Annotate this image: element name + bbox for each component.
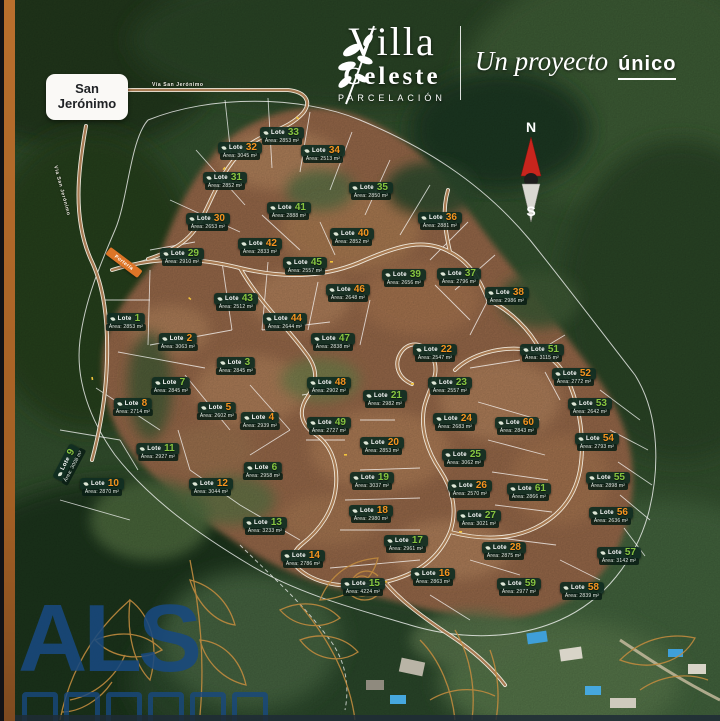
lot-label: Lote bbox=[337, 287, 351, 293]
lot-label: Lote bbox=[422, 571, 436, 577]
lot-label: Lote bbox=[360, 508, 374, 514]
lot-marker: Lote 18 Área: 2980 m² bbox=[349, 505, 393, 523]
lot-number: 19 bbox=[378, 473, 389, 483]
lot-label: Lote bbox=[459, 483, 473, 489]
lot-number: 44 bbox=[291, 314, 302, 324]
lot-number: 15 bbox=[369, 579, 380, 589]
lot-label: Lote bbox=[163, 380, 177, 386]
leaf-icon bbox=[155, 380, 160, 385]
leaf-icon bbox=[510, 486, 515, 491]
lot-label: Lote bbox=[91, 481, 105, 487]
lot-area: Área: 2714 m² bbox=[113, 409, 153, 416]
lot-number: 56 bbox=[617, 508, 628, 518]
leaf-icon bbox=[286, 260, 291, 265]
lot-marker: Lote 58 Área: 2839 m² bbox=[560, 582, 604, 600]
lot-area: Área: 2796 m² bbox=[439, 279, 479, 286]
lot-area: Área: 2852 m² bbox=[205, 183, 245, 190]
lot-label: Lote bbox=[318, 420, 332, 426]
lot-label: Lote bbox=[318, 380, 332, 386]
lot-number: 26 bbox=[476, 481, 487, 491]
lot-number: 43 bbox=[242, 294, 253, 304]
leaf-icon bbox=[344, 581, 349, 586]
lot-area: Área: 2642 m² bbox=[570, 409, 610, 416]
lot-label: Lote bbox=[439, 380, 453, 386]
leaf-icon bbox=[314, 336, 319, 341]
lot-marker: Lote 13 Área: 3233 m² bbox=[243, 517, 287, 535]
lot-marker: Lote 55 Área: 2898 m² bbox=[586, 472, 630, 490]
lot-label: Lote bbox=[171, 251, 185, 257]
lot-label: Lote bbox=[249, 241, 263, 247]
leaf-icon bbox=[247, 465, 252, 470]
lot-marker: Lote 8 Área: 2714 m² bbox=[113, 398, 153, 416]
lot-marker: Lote 4 Área: 2939 m² bbox=[240, 412, 280, 430]
leaf-icon bbox=[162, 336, 167, 341]
lot-label: Lote bbox=[586, 436, 600, 442]
lot-marker: Lote 21 Área: 2982 m² bbox=[363, 390, 407, 408]
lot-marker: Lote 24 Área: 2683 m² bbox=[433, 413, 477, 431]
leaf-icon bbox=[498, 420, 503, 425]
lot-marker: Lote 16 Área: 2863 m² bbox=[411, 568, 455, 586]
lot-area: Área: 2653 m² bbox=[188, 224, 228, 231]
lot-label: Lote bbox=[571, 585, 585, 591]
lot-label: Lote bbox=[274, 316, 288, 322]
lot-marker: Lote 28 Área: 2875 m² bbox=[482, 542, 526, 560]
lot-number: 36 bbox=[446, 213, 457, 223]
leaf-icon bbox=[310, 420, 315, 425]
lot-area: Área: 2863 m² bbox=[413, 579, 453, 586]
leaf-icon bbox=[416, 347, 421, 352]
lot-label: Lote bbox=[518, 486, 532, 492]
lot-number: 34 bbox=[329, 146, 340, 156]
lot-area: Área: 2838 m² bbox=[313, 344, 353, 351]
lot-area: Área: 3045 m² bbox=[220, 153, 260, 160]
lot-marker: Lote 6 Área: 2958 m² bbox=[243, 462, 283, 480]
leaf-icon bbox=[83, 481, 88, 486]
lot-number: 49 bbox=[335, 418, 346, 428]
lot-number: 48 bbox=[335, 378, 346, 388]
lot-label: Lote bbox=[352, 581, 366, 587]
lot-number: 31 bbox=[231, 173, 242, 183]
lot-number: 3 bbox=[245, 358, 251, 368]
leaf-icon bbox=[414, 571, 419, 576]
leaf-icon bbox=[440, 271, 445, 276]
lot-area: Área: 2683 m² bbox=[435, 424, 475, 431]
lot-label: Lote bbox=[395, 538, 409, 544]
lot-number: 28 bbox=[510, 543, 521, 553]
lot-label: Lote bbox=[341, 231, 355, 237]
lot-area: Área: 3062 m² bbox=[444, 460, 484, 467]
leaf-icon bbox=[366, 393, 371, 398]
lot-marker: Lote 30 Área: 2653 m² bbox=[186, 213, 230, 231]
lot-label: Lote bbox=[393, 272, 407, 278]
lot-area: Área: 2833 m² bbox=[240, 249, 280, 256]
lot-marker: Lote 41 Área: 2888 m² bbox=[267, 202, 311, 220]
lot-number: 47 bbox=[339, 334, 350, 344]
lot-marker: Lote 42 Área: 2833 m² bbox=[238, 238, 282, 256]
leaf-icon bbox=[421, 215, 426, 220]
leaf-icon bbox=[217, 296, 222, 301]
lot-marker: Lote 15 Área: 4224 m² bbox=[341, 578, 385, 596]
lot-number: 29 bbox=[188, 249, 199, 259]
lot-label: Lote bbox=[209, 405, 223, 411]
lot-marker: Lote 34 Área: 2513 m² bbox=[301, 145, 345, 163]
lot-marker: Lote 20 Área: 2853 m² bbox=[360, 437, 404, 455]
lot-number: 32 bbox=[246, 143, 257, 153]
lot-label: Lote bbox=[600, 510, 614, 516]
tagline-unico: único bbox=[618, 53, 676, 80]
lot-marker: Lote 37 Área: 2796 m² bbox=[437, 268, 481, 286]
lot-marker: Lote 11 Área: 2927 m² bbox=[136, 443, 179, 461]
leaf-icon bbox=[363, 440, 368, 445]
leaf-icon bbox=[140, 446, 145, 451]
lot-area: Área: 3037 m² bbox=[352, 483, 392, 490]
lot-number: 42 bbox=[266, 239, 277, 249]
leaf-icon bbox=[284, 553, 289, 558]
lot-label: Lote bbox=[468, 513, 482, 519]
lot-number: 39 bbox=[410, 270, 421, 280]
lot-label: Lote bbox=[214, 175, 228, 181]
lot-number: 53 bbox=[596, 399, 607, 409]
lot-number: 17 bbox=[412, 536, 423, 546]
lot-area: Área: 2898 m² bbox=[588, 483, 628, 490]
lot-label: Lote bbox=[508, 581, 522, 587]
lot-area: Área: 2839 m² bbox=[562, 593, 602, 600]
lot-area: Área: 2977 m² bbox=[499, 589, 539, 596]
lot-number: 24 bbox=[461, 414, 472, 424]
leaf-icon bbox=[220, 360, 225, 365]
lot-label: Lote bbox=[292, 553, 306, 559]
lot-label: Lote bbox=[493, 545, 507, 551]
lot-number: 13 bbox=[271, 518, 282, 528]
lot-marker: Lote 14 Área: 2786 m² bbox=[281, 550, 325, 568]
lot-marker: Lote 59 Área: 2977 m² bbox=[497, 578, 541, 596]
watermark-text: ALS bbox=[18, 596, 198, 682]
lot-label: Lote bbox=[374, 393, 388, 399]
lot-marker: Lote 40 Área: 2852 m² bbox=[330, 228, 374, 246]
lot-area: Área: 2547 m² bbox=[415, 355, 455, 362]
lot-number: 60 bbox=[523, 418, 534, 428]
lot-marker: Lote 7 Área: 2845 m² bbox=[151, 377, 191, 395]
leaf-icon bbox=[58, 472, 62, 476]
branch-icon bbox=[338, 22, 380, 108]
lot-number: 58 bbox=[588, 583, 599, 593]
lot-area: Área: 2727 m² bbox=[309, 428, 349, 435]
lot-area: Área: 2927 m² bbox=[138, 454, 178, 461]
lot-area: Área: 2866 m² bbox=[509, 494, 549, 501]
lot-number: 12 bbox=[217, 479, 228, 489]
lot-label: Lote bbox=[531, 347, 545, 353]
lot-marker: Lote 61 Área: 2866 m² bbox=[507, 483, 551, 501]
lot-label: Lote bbox=[579, 401, 593, 407]
leaf-icon bbox=[244, 415, 249, 420]
lot-marker: Lote 36 Área: 2881 m² bbox=[418, 212, 462, 230]
bottom-shadow-strip bbox=[0, 715, 720, 721]
lot-number: 10 bbox=[108, 479, 119, 489]
leaf-icon bbox=[571, 401, 576, 406]
leaf-icon bbox=[266, 316, 271, 321]
lot-area: Área: 2843 m² bbox=[497, 428, 537, 435]
lot-label: Lote bbox=[453, 452, 467, 458]
lot-number: 41 bbox=[295, 203, 306, 213]
lot-label: Lote bbox=[429, 215, 443, 221]
lot-number: 46 bbox=[354, 285, 365, 295]
lot-area: Área: 2875 m² bbox=[484, 553, 524, 560]
lot-label: Lote bbox=[506, 420, 520, 426]
lot-number: 38 bbox=[513, 288, 524, 298]
lot-area: Área: 2786 m² bbox=[283, 561, 323, 568]
leaf-icon bbox=[578, 436, 583, 441]
lot-number: 14 bbox=[309, 551, 320, 561]
lot-number: 5 bbox=[226, 403, 232, 413]
leaf-icon bbox=[589, 475, 594, 480]
lot-area: Área: 2852 m² bbox=[332, 239, 372, 246]
lot-label: Lote bbox=[254, 520, 268, 526]
lot-number: 8 bbox=[142, 399, 148, 409]
leaf-icon bbox=[241, 241, 246, 246]
lot-number: 6 bbox=[272, 463, 278, 473]
leaf-icon bbox=[192, 481, 197, 486]
lot-marker: Lote 5 Área: 2602 m² bbox=[197, 402, 237, 420]
lot-marker: Lote 52 Área: 2772 m² bbox=[552, 368, 596, 386]
lot-label: Lote bbox=[147, 446, 161, 452]
lot-number: 37 bbox=[465, 269, 476, 279]
lot-area: Área: 2845 m² bbox=[216, 368, 256, 375]
lot-area: Área: 2902 m² bbox=[309, 388, 349, 395]
lot-label: Lote bbox=[424, 347, 438, 353]
lot-area: Área: 2961 m² bbox=[386, 546, 426, 553]
lot-marker: Lote 26 Área: 2570 m² bbox=[448, 480, 492, 498]
lot-marker: Lote 43 Área: 2512 m² bbox=[214, 293, 258, 311]
lot-label: Lote bbox=[361, 475, 375, 481]
lot-label: Lote bbox=[229, 145, 243, 151]
lot-marker: Lote 19 Área: 3037 m² bbox=[350, 472, 394, 490]
leaf-icon bbox=[431, 380, 436, 385]
leaf-icon bbox=[600, 550, 605, 555]
lot-label: Lote bbox=[444, 416, 458, 422]
lot-area: Área: 3044 m² bbox=[191, 489, 231, 496]
lot-marker: Lote 48 Área: 2902 m² bbox=[307, 377, 351, 395]
lot-area: Área: 2656 m² bbox=[384, 280, 424, 287]
lot-marker: Lote 17 Área: 2961 m² bbox=[384, 535, 428, 553]
lot-marker: Lote 10 Área: 2870 m² bbox=[80, 478, 124, 496]
lot-label: Lote bbox=[448, 271, 462, 277]
lot-marker: Lote 3 Área: 2845 m² bbox=[216, 357, 256, 375]
leaf-icon bbox=[451, 483, 456, 488]
lot-area: Área: 3115 m² bbox=[522, 355, 562, 362]
lot-label: Lote bbox=[228, 360, 242, 366]
lot-area: Área: 2986 m² bbox=[487, 298, 527, 305]
lot-area: Área: 2557 m² bbox=[430, 388, 470, 395]
lot-area: Área: 2644 m² bbox=[265, 324, 305, 331]
lot-marker: Lote 51 Área: 3115 m² bbox=[520, 344, 564, 362]
lot-marker: Lote 57 Área: 3142 m² bbox=[597, 547, 641, 565]
watermark: ALS bbox=[18, 596, 198, 682]
lot-number: 20 bbox=[388, 438, 399, 448]
lot-area: Área: 2772 m² bbox=[554, 379, 594, 386]
lot-label: Lote bbox=[371, 440, 385, 446]
lot-marker: Lote 49 Área: 2727 m² bbox=[307, 417, 351, 435]
lot-marker: Lote 46 Área: 2648 m² bbox=[326, 284, 370, 302]
lot-area: Área: 2853 m² bbox=[106, 324, 146, 331]
lot-marker: Lote 33 Área: 2853 m² bbox=[260, 127, 304, 145]
leaf-icon bbox=[436, 416, 441, 421]
lot-marker: Lote 25 Área: 3062 m² bbox=[442, 449, 486, 467]
leaf-icon bbox=[163, 251, 168, 256]
lot-marker: Lote 38 Área: 2986 m² bbox=[485, 287, 529, 305]
lot-label: Lote bbox=[294, 260, 308, 266]
leaf-icon bbox=[333, 231, 338, 236]
lot-marker: Lote 2 Área: 3063 m² bbox=[158, 333, 198, 351]
san-jeronimo-sign-label: San Jerónimo bbox=[48, 82, 126, 112]
lot-number: 51 bbox=[548, 345, 559, 355]
leaf-icon bbox=[353, 475, 358, 480]
lot-number: 55 bbox=[614, 473, 625, 483]
lot-marker: Lote 22 Área: 2547 m² bbox=[413, 344, 457, 362]
header-brand: Villa Celeste Parcelación Un proyecto ún… bbox=[338, 22, 676, 103]
leaf-icon bbox=[310, 380, 315, 385]
lot-number: 57 bbox=[625, 548, 636, 558]
lot-area: Área: 2870 m² bbox=[82, 489, 122, 496]
lot-label: Lote bbox=[255, 465, 269, 471]
lot-label: Lote bbox=[200, 481, 214, 487]
lot-area: Área: 2853 m² bbox=[262, 138, 302, 145]
lot-area: Área: 2982 m² bbox=[365, 401, 405, 408]
lot-number: 4 bbox=[269, 413, 275, 423]
aerial-map: N S bbox=[0, 0, 720, 721]
lot-marker: Lote 54 Área: 2793 m² bbox=[575, 433, 619, 451]
lot-area: Área: 2980 m² bbox=[351, 516, 391, 523]
lot-number: 35 bbox=[377, 183, 388, 193]
lot-area: Área: 2845 m² bbox=[151, 388, 191, 395]
lot-marker: Lote 60 Área: 2843 m² bbox=[495, 417, 539, 435]
lot-number: 7 bbox=[180, 378, 186, 388]
road-label-horizontal: Vía San Jerónimo bbox=[152, 82, 204, 88]
lot-area: Área: 2853 m² bbox=[362, 448, 402, 455]
lot-number: 25 bbox=[470, 450, 481, 460]
lot-marker: Lote 35 Área: 2850 m² bbox=[349, 182, 393, 200]
leaf-icon bbox=[563, 585, 568, 590]
leaf-icon bbox=[500, 581, 505, 586]
lot-area: Área: 3233 m² bbox=[245, 528, 285, 535]
lot-label: Lote bbox=[252, 415, 266, 421]
leaf-icon bbox=[460, 513, 465, 518]
lot-number: 59 bbox=[525, 579, 536, 589]
san-jeronimo-sign: San Jerónimo bbox=[46, 74, 128, 120]
lot-number: 61 bbox=[535, 484, 546, 494]
lot-label: Lote bbox=[360, 185, 374, 191]
lot-number: 2 bbox=[187, 334, 193, 344]
leaf-icon bbox=[523, 347, 528, 352]
lot-area: Área: 2512 m² bbox=[216, 304, 256, 311]
lot-area: Área: 2557 m² bbox=[285, 268, 325, 275]
leaf-icon bbox=[329, 287, 334, 292]
lot-number: 45 bbox=[311, 258, 322, 268]
lot-label: Lote bbox=[278, 205, 292, 211]
lot-area: Área: 2881 m² bbox=[420, 223, 460, 230]
lot-marker: Lote 44 Área: 2644 m² bbox=[263, 313, 307, 331]
leaf-icon bbox=[246, 520, 251, 525]
lot-number: 30 bbox=[214, 214, 225, 224]
lot-marker: Lote 45 Área: 2557 m² bbox=[283, 257, 327, 275]
brand-divider bbox=[460, 26, 461, 100]
lot-area: Área: 4224 m² bbox=[343, 589, 383, 596]
lot-label: Lote bbox=[118, 316, 132, 322]
lot-area: Área: 2850 m² bbox=[351, 193, 391, 200]
leaf-icon bbox=[304, 148, 309, 153]
lot-marker: Lote 29 Área: 2910 m² bbox=[160, 248, 204, 266]
lot-number: 23 bbox=[456, 378, 467, 388]
lot-marker: Lote 12 Área: 3044 m² bbox=[189, 478, 233, 496]
leaf-icon bbox=[263, 130, 268, 135]
lot-area: Área: 2888 m² bbox=[269, 213, 309, 220]
lot-label: Lote bbox=[563, 371, 577, 377]
lot-label: Lote bbox=[597, 475, 611, 481]
lot-area: Área: 2648 m² bbox=[328, 295, 368, 302]
lot-area: Área: 2513 m² bbox=[303, 156, 343, 163]
lot-number: 54 bbox=[603, 434, 614, 444]
lot-label: Lote bbox=[312, 148, 326, 154]
lot-label: Lote bbox=[170, 336, 184, 342]
lot-area: Área: 2958 m² bbox=[243, 473, 283, 480]
lot-area: Área: 2570 m² bbox=[450, 491, 490, 498]
lot-area: Área: 3142 m² bbox=[599, 558, 639, 565]
leaf-icon bbox=[485, 545, 490, 550]
leaf-icon bbox=[221, 145, 226, 150]
lot-number: 33 bbox=[288, 128, 299, 138]
lot-label: Lote bbox=[271, 130, 285, 136]
lot-marker: Lote 53 Área: 2642 m² bbox=[568, 398, 612, 416]
lot-area: Área: 2793 m² bbox=[577, 444, 617, 451]
tagline-script: Un proyecto bbox=[475, 46, 608, 77]
lot-area: Área: 3063 m² bbox=[158, 344, 198, 351]
lot-label: Lote bbox=[225, 296, 239, 302]
lot-area: Área: 3021 m² bbox=[459, 521, 499, 528]
lot-label: Lote bbox=[197, 216, 211, 222]
leaf-icon bbox=[352, 185, 357, 190]
leaf-icon bbox=[189, 216, 194, 221]
leaf-icon bbox=[445, 452, 450, 457]
lot-marker: Lote 23 Área: 2557 m² bbox=[428, 377, 472, 395]
lot-number: 11 bbox=[164, 444, 175, 454]
leaf-icon bbox=[592, 510, 597, 515]
leaf-icon bbox=[117, 401, 122, 406]
lot-area: Área: 2910 m² bbox=[162, 259, 202, 266]
leaf-icon bbox=[387, 538, 392, 543]
lot-marker: Lote 27 Área: 3021 m² bbox=[457, 510, 501, 528]
lot-number: 21 bbox=[391, 391, 402, 401]
lot-label: Lote bbox=[608, 550, 622, 556]
lot-number: 22 bbox=[441, 345, 452, 355]
lot-marker: Lote 32 Área: 3045 m² bbox=[218, 142, 262, 160]
lot-number: 16 bbox=[439, 569, 450, 579]
left-orange-bar bbox=[4, 0, 15, 721]
lot-label: Lote bbox=[496, 290, 510, 296]
leaf-icon bbox=[385, 272, 390, 277]
lot-marker: Lote 1 Área: 2853 m² bbox=[106, 313, 146, 331]
lot-area: Área: 2602 m² bbox=[197, 413, 237, 420]
lot-number: 40 bbox=[358, 229, 369, 239]
lot-marker: Lote 56 Área: 2636 m² bbox=[589, 507, 633, 525]
lot-marker: Lote 31 Área: 2852 m² bbox=[203, 172, 247, 190]
leaf-icon bbox=[352, 508, 357, 513]
lot-number: 52 bbox=[580, 369, 591, 379]
leaf-icon bbox=[201, 405, 206, 410]
leaf-icon bbox=[206, 175, 211, 180]
leaf-icon bbox=[555, 371, 560, 376]
lot-label: Lote bbox=[125, 401, 139, 407]
leaf-icon bbox=[488, 290, 493, 295]
lot-marker: Lote 39 Área: 2656 m² bbox=[382, 269, 426, 287]
